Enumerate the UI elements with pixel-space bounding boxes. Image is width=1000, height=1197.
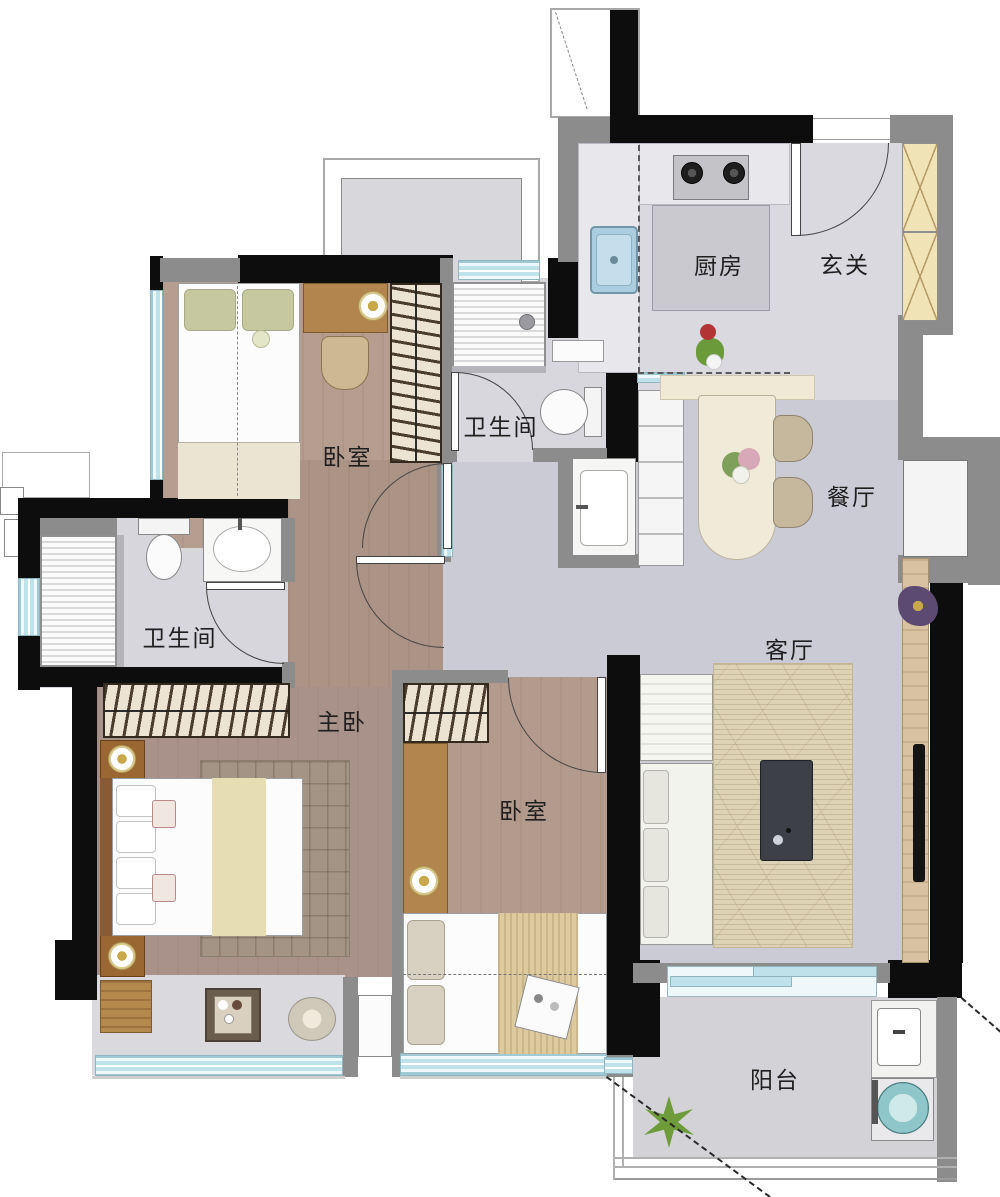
pillow — [116, 785, 156, 817]
wall-segment — [968, 437, 1000, 585]
decor-dot — [550, 1002, 559, 1011]
stove-burner — [681, 162, 703, 184]
vanity-sink — [213, 526, 271, 572]
coffee-table — [760, 760, 813, 861]
shoe-cabinet — [902, 143, 938, 232]
shoe-cabinet — [902, 232, 938, 321]
balcony-railing — [613, 1157, 957, 1159]
pillow — [116, 821, 156, 853]
vanity-faucet — [238, 518, 242, 530]
balcony-sliding-door-track — [753, 966, 877, 977]
vegetable-decor — [700, 324, 716, 340]
table-lamp — [409, 866, 439, 896]
chaise — [640, 674, 713, 761]
wall-segment — [55, 940, 97, 1000]
room-label-balcony: 阳台 — [728, 1066, 822, 1096]
equipment-platform-door — [903, 460, 968, 557]
wall-segment — [40, 518, 117, 535]
pouf — [288, 997, 336, 1041]
wall-segment — [610, 10, 638, 143]
pillow — [116, 893, 156, 925]
room-label-entry: 玄关 — [800, 251, 890, 281]
wall-segment — [558, 143, 578, 262]
window-sill — [92, 1076, 345, 1079]
wall-segment — [392, 670, 403, 1077]
window — [458, 260, 540, 280]
bed-headboard — [100, 778, 112, 936]
sink-drain — [610, 256, 618, 264]
tv — [913, 744, 925, 882]
open-kitchen-boundary — [638, 145, 640, 373]
balcony-railing — [613, 1178, 957, 1180]
decor-dot — [534, 994, 543, 1003]
pillow — [242, 289, 294, 331]
room-label-dining: 餐厅 — [807, 483, 897, 513]
window — [18, 578, 40, 636]
room-label-bedroom-upper: 卧室 — [300, 443, 395, 473]
shower-head — [519, 314, 535, 330]
bed-runner — [212, 778, 266, 936]
window-sill — [400, 1076, 607, 1079]
bed-centerline — [403, 974, 607, 975]
room-label-bathroom-left: 卫生间 — [130, 624, 230, 654]
room-label-living: 客厅 — [745, 636, 835, 666]
wall-segment — [558, 448, 572, 568]
bed-centerline — [237, 286, 238, 496]
washing-machine-drum — [877, 1082, 929, 1134]
shower-area — [40, 535, 117, 667]
wall-segment — [150, 478, 163, 502]
door-frame — [813, 118, 890, 140]
wardrobe — [403, 683, 489, 743]
stove-burner — [723, 162, 745, 184]
wall-segment — [558, 117, 610, 143]
sideboard-cabinet — [638, 390, 684, 566]
decor-dot — [218, 1000, 228, 1010]
wall-segment — [888, 960, 962, 998]
pillow — [407, 985, 445, 1045]
sofa-cushion — [643, 770, 669, 824]
table-lamp — [108, 942, 136, 970]
sofa-cushion — [643, 886, 669, 938]
decor-dot — [786, 828, 791, 833]
wall-segment — [238, 255, 453, 283]
cushion — [252, 330, 270, 348]
pillow — [407, 920, 445, 980]
boundary-dashed-line — [961, 997, 1000, 1033]
vanity-faucet — [893, 1030, 905, 1034]
wall-segment — [343, 977, 358, 1077]
open-kitchen-boundary — [638, 372, 790, 374]
wall-segment — [72, 687, 97, 959]
wall-segment — [282, 518, 295, 582]
blanket — [178, 442, 300, 499]
wall-segment — [898, 335, 923, 440]
room-label-bathroom-upper: 卫生间 — [451, 413, 551, 443]
balcony-railing — [613, 1077, 615, 1180]
window — [150, 290, 163, 480]
cushion — [152, 800, 176, 828]
toilet-tank — [138, 518, 190, 535]
pillow — [116, 857, 156, 889]
table-lamp — [358, 291, 388, 321]
wall-segment — [937, 997, 957, 1182]
sofa-cushion — [643, 828, 669, 882]
shower-glass — [117, 535, 124, 667]
table-lamp — [108, 745, 136, 773]
cushion — [152, 874, 176, 902]
wall-segment — [938, 115, 953, 335]
flower-centerpiece — [732, 466, 750, 484]
toilet-bowl — [146, 534, 182, 580]
wall-segment — [638, 115, 813, 143]
pillow — [184, 289, 236, 331]
decor-dot — [224, 1014, 234, 1024]
room-label-master: 主卧 — [299, 708, 385, 738]
room-label-bedroom-lower: 卧室 — [477, 797, 571, 827]
wall-segment — [558, 554, 640, 568]
wardrobe — [103, 683, 290, 738]
window — [400, 1053, 607, 1076]
wall-segment — [930, 560, 963, 963]
vanity-faucet — [576, 505, 588, 509]
window — [95, 1055, 343, 1076]
washing-machine-panel — [872, 1080, 878, 1124]
bay-window-panel — [358, 995, 392, 1057]
wall-segment — [400, 670, 508, 683]
decor-dot — [232, 1000, 242, 1010]
floor-plan: 厨房 玄关 卫生间 卧室 卫生间 餐厅 客厅 主卧 卧室 阳台 — [0, 0, 1000, 1197]
wall-segment — [160, 258, 240, 282]
vegetable-decor — [706, 354, 722, 370]
window — [604, 1057, 633, 1074]
wardrobe — [390, 283, 442, 463]
balcony-railing — [613, 1166, 957, 1168]
balcony-sliding-door-track — [670, 976, 792, 987]
room-label-kitchen: 厨房 — [674, 252, 764, 282]
wall-segment — [18, 498, 40, 582]
bathroom-shelf — [552, 340, 604, 362]
chair — [321, 336, 369, 390]
dining-chair — [773, 415, 813, 462]
decor-dot — [773, 835, 783, 845]
bench — [100, 980, 152, 1033]
laundry-sink — [877, 1008, 921, 1066]
